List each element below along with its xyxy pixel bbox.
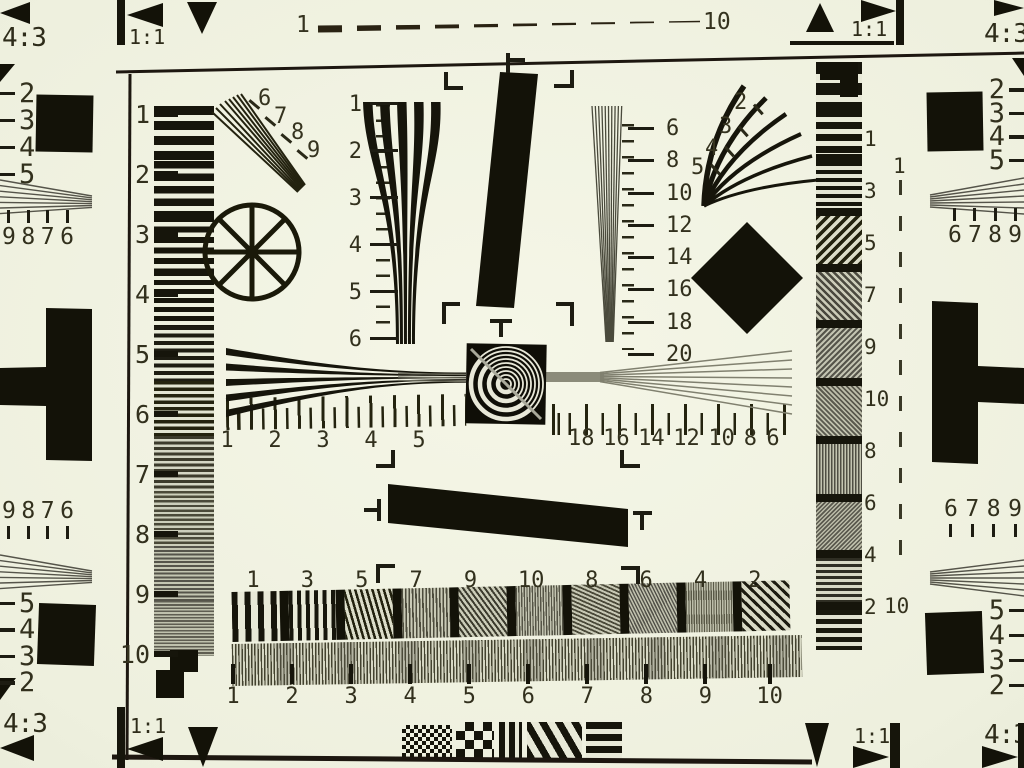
vertical-wedge-label: 4 bbox=[322, 235, 362, 282]
left-ruler-label: 7 bbox=[112, 462, 150, 522]
crop-bar bbox=[1018, 723, 1024, 768]
edge-group-number: 9 bbox=[2, 210, 16, 249]
band-top-label: 1 bbox=[246, 570, 260, 592]
edge-group-number: 7 bbox=[965, 498, 979, 537]
band-top-label: 8 bbox=[585, 570, 599, 592]
corner-triangle-left bbox=[127, 3, 163, 27]
aspect-label-43: 4:3 bbox=[3, 711, 47, 737]
fine-wedge-label: 8 bbox=[628, 150, 693, 182]
h-ruler-label: 10 bbox=[708, 428, 735, 450]
center-slant-bar-bottom bbox=[388, 484, 628, 547]
band-top-labels: 13579108642 bbox=[246, 570, 762, 592]
edge-right-upper-labels: 2345 bbox=[978, 78, 1024, 172]
right-ruler-label: 8 bbox=[864, 440, 894, 492]
bottom-ruler: 12345678910 bbox=[225, 664, 783, 708]
bottom-ruler-label: 7 bbox=[579, 664, 595, 708]
corner-triangle-down bbox=[188, 727, 218, 767]
bottom-ruler-label: 10 bbox=[756, 664, 783, 708]
vertical-wedge bbox=[363, 102, 441, 344]
vertical-wedge-scale: 123456 bbox=[322, 94, 362, 376]
corner-triangle-right bbox=[994, 0, 1024, 16]
fine-wedge-label: 6 bbox=[628, 118, 693, 150]
h-ruler-label: 16 bbox=[603, 428, 630, 450]
vertical-wedge-label: 3 bbox=[322, 188, 362, 235]
crop-bar bbox=[890, 723, 900, 768]
center-slant-bar-top bbox=[476, 72, 538, 308]
edge-group-number: 7 bbox=[968, 208, 982, 247]
fan-right-label: 2 bbox=[734, 92, 747, 114]
h-ruler-label: 1 bbox=[220, 430, 234, 452]
left-ruler-label: 4 bbox=[112, 282, 150, 342]
right-ruler-label: 1 bbox=[864, 128, 894, 180]
band-top-label: 9 bbox=[464, 570, 478, 592]
right-dash-start: 1 bbox=[893, 156, 906, 177]
edge-group-number: 9 bbox=[2, 500, 16, 539]
bottom-ruler-label: 2 bbox=[284, 664, 300, 708]
crop-bar bbox=[117, 707, 125, 768]
underline bbox=[790, 41, 894, 45]
corner-triangle-right bbox=[982, 746, 1018, 768]
h-ruler-label: 8 bbox=[743, 428, 757, 450]
edge-number: 5 bbox=[0, 590, 46, 617]
fan-right-label: 3 bbox=[719, 116, 732, 138]
fine-wedge-label: 20 bbox=[628, 344, 693, 376]
edge-group-number: 8 bbox=[21, 500, 35, 539]
right-top-flag bbox=[820, 62, 858, 97]
h-ruler-right-labels: 181614121086 bbox=[568, 428, 780, 450]
fine-wedge-label: 16 bbox=[628, 279, 693, 311]
corner-triangle-up bbox=[806, 3, 834, 32]
band-top-label: 3 bbox=[300, 570, 314, 592]
h-ruler-label: 3 bbox=[316, 430, 330, 452]
aspect-label-11: 1:1 bbox=[854, 726, 890, 746]
edge-left-upper-group: 9876 bbox=[2, 210, 74, 249]
band-top-label: 2 bbox=[748, 570, 762, 592]
edge-group-number: 7 bbox=[41, 210, 55, 249]
top-scale-end: 10 bbox=[703, 11, 731, 34]
edge-group-number: 6 bbox=[944, 498, 958, 537]
edge-group-number: 6 bbox=[60, 210, 74, 249]
wheel-icon bbox=[205, 205, 299, 299]
edge-group-number: 8 bbox=[987, 498, 1001, 537]
edge-group-number: 9 bbox=[1008, 498, 1022, 537]
left-ruler-label: 8 bbox=[112, 522, 150, 582]
vertical-wedge-label: 2 bbox=[322, 141, 362, 188]
top-dash-scale-line bbox=[318, 22, 700, 30]
bottom-ruler-label: 6 bbox=[520, 664, 536, 708]
vertical-wedge-label: 6 bbox=[322, 329, 362, 376]
aspect-label-43: 4:3 bbox=[984, 21, 1024, 47]
edge-right-lower-labels: 5432 bbox=[978, 598, 1024, 698]
right-ruler-label: 9 bbox=[864, 336, 894, 388]
center-target-icon bbox=[465, 343, 546, 424]
band-top-label: 6 bbox=[639, 570, 653, 592]
h-ruler-label: 18 bbox=[568, 428, 595, 450]
left-ruler-label: 6 bbox=[112, 402, 150, 462]
left-ruler-label: 1 bbox=[112, 102, 150, 162]
right-edge-t-shape bbox=[932, 301, 1024, 464]
corner-triangle-left bbox=[0, 735, 34, 761]
bottom-ruler-label: 1 bbox=[225, 664, 241, 708]
edge-number: 2 bbox=[0, 80, 46, 107]
h-ruler-label: 6 bbox=[766, 428, 780, 450]
bottom-ruler-label: 5 bbox=[461, 664, 477, 708]
edge-number: 2 bbox=[978, 673, 1024, 698]
band-top-label: 5 bbox=[355, 570, 369, 592]
edge-group-number: 9 bbox=[1008, 208, 1022, 247]
corner-triangle-down bbox=[187, 2, 217, 34]
fine-wedge-label: 18 bbox=[628, 312, 693, 344]
vertical-wedge-label: 1 bbox=[322, 94, 362, 141]
corner-triangle-left bbox=[0, 2, 30, 24]
edge-number: 3 bbox=[0, 107, 46, 134]
edge-number: 4 bbox=[0, 134, 46, 161]
right-ruler-label: 6 bbox=[864, 492, 894, 544]
fine-wedge-label: 14 bbox=[628, 247, 693, 279]
aspect-label-11: 1:1 bbox=[129, 27, 165, 47]
fan-left-label: 8 bbox=[291, 122, 304, 144]
left-ruler-label: 10 bbox=[112, 642, 150, 702]
right-ruler-label: 4 bbox=[864, 544, 894, 596]
h-ruler-label: 12 bbox=[673, 428, 700, 450]
band-top-label: 4 bbox=[694, 570, 708, 592]
right-ruler-label: 10 bbox=[864, 388, 894, 440]
left-ruler-label: 2 bbox=[112, 162, 150, 222]
edge-group-number: 6 bbox=[60, 500, 74, 539]
left-ruler-flag bbox=[156, 650, 198, 698]
corner-triangle-down bbox=[805, 723, 829, 767]
top-scale-start: 1 bbox=[296, 14, 310, 37]
aspect-label-43: 4:3 bbox=[2, 25, 46, 51]
right-ruler-label: 7 bbox=[864, 284, 894, 336]
left-ruler-label: 3 bbox=[112, 222, 150, 282]
bottom-ruler-label: 4 bbox=[402, 664, 418, 708]
edge-left-upper-labels: 2345 bbox=[0, 80, 46, 188]
fine-wedge bbox=[592, 106, 622, 342]
fine-wedge-label: 12 bbox=[628, 215, 693, 247]
edge-number: 3 bbox=[0, 643, 46, 670]
right-ruler-label: 5 bbox=[864, 232, 894, 284]
bottom-ruler-label: 3 bbox=[343, 664, 359, 708]
crop-bar bbox=[117, 0, 125, 45]
bottom-ruler-label: 8 bbox=[638, 664, 654, 708]
edge-number: 5 bbox=[978, 149, 1024, 173]
aspect-label-11: 1:1 bbox=[851, 19, 887, 39]
fan-right-label: 4 bbox=[705, 138, 718, 160]
curved-fan bbox=[704, 86, 818, 206]
aspect-label-11: 1:1 bbox=[130, 716, 166, 736]
edge-right-lower-group: 6789 bbox=[944, 498, 1022, 537]
left-ruler-label: 9 bbox=[112, 582, 150, 642]
band-top-label: 7 bbox=[409, 570, 423, 592]
corner-triangle-right bbox=[853, 746, 889, 768]
h-ruler-label: 5 bbox=[412, 430, 426, 452]
h-ruler-label: 14 bbox=[638, 428, 665, 450]
h-ruler-left-labels: 12345 bbox=[220, 430, 426, 452]
edge-left-lower-group: 9876 bbox=[2, 500, 74, 539]
h-ruler-label: 2 bbox=[268, 430, 282, 452]
vertical-wedge-label: 5 bbox=[322, 282, 362, 329]
edge-group-number: 7 bbox=[41, 500, 55, 539]
resolution-test-chart: 4:3 1:1 1:1 4:3 4:3 1:1 1:1 4:3 1 10 123… bbox=[0, 0, 1024, 768]
right-dash-end: 10 bbox=[884, 596, 909, 617]
right-ruler-label: 3 bbox=[864, 180, 894, 232]
fan-right-label: 5 bbox=[691, 157, 704, 179]
right-ruler-labels: 13579108642 bbox=[864, 128, 894, 648]
left-edge-t-shape bbox=[0, 308, 92, 461]
band-top-label: 10 bbox=[518, 570, 545, 592]
left-ruler-label: 5 bbox=[112, 342, 150, 402]
edge-number: 2 bbox=[0, 670, 46, 697]
corner-triangle-right bbox=[861, 0, 896, 22]
fan-left-label: 9 bbox=[307, 140, 320, 162]
diamond-icon bbox=[691, 222, 803, 334]
left-ruler-labels: 12345678910 bbox=[112, 102, 150, 702]
edge-number: 4 bbox=[0, 617, 46, 644]
corner-triangle-left bbox=[127, 737, 163, 761]
bottom-ruler-label: 9 bbox=[697, 664, 713, 708]
edge-group-number: 8 bbox=[21, 210, 35, 249]
fine-wedge-scale: 68101214161820 bbox=[628, 118, 693, 376]
edge-group-number: 6 bbox=[948, 208, 962, 247]
target-right-gray-bar bbox=[546, 372, 604, 382]
edge-left-lower-labels: 5432 bbox=[0, 590, 46, 696]
crop-bar bbox=[896, 0, 904, 45]
edge-group-number: 8 bbox=[988, 208, 1002, 247]
h-ruler-label: 4 bbox=[364, 430, 378, 452]
edge-number: 5 bbox=[0, 161, 46, 188]
fine-wedge-label: 10 bbox=[628, 183, 693, 215]
edge-right-upper-group: 6789 bbox=[948, 208, 1022, 247]
